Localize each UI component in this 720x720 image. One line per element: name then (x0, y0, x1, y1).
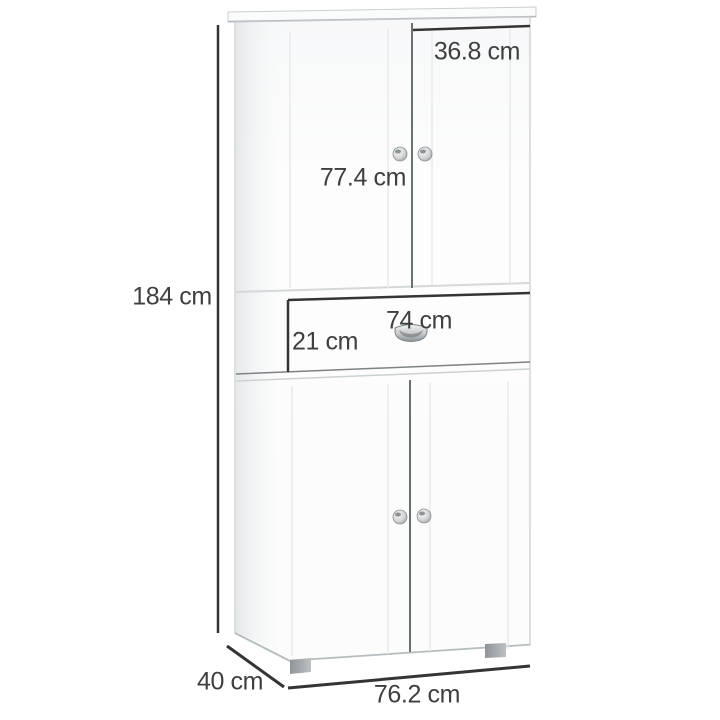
dim-label-depth: 40 cm (197, 670, 263, 695)
cabinet-foot (485, 643, 506, 658)
door-knob-icon (418, 147, 432, 161)
door-knob-icon (417, 509, 431, 523)
dim-label-width: 76.2 cm (374, 683, 460, 708)
dim-label-drawer-height: 21 cm (292, 330, 358, 355)
dim-label-drawer-width: 74 cm (386, 309, 452, 334)
dim-label-right-door-width: 36.8 cm (434, 40, 520, 65)
cabinet-illustration (0, 0, 720, 720)
cabinet-foot (290, 658, 311, 674)
dim-label-height: 184 cm (132, 285, 212, 310)
door-knob-icon (393, 147, 407, 161)
door-knob-icon (393, 510, 407, 524)
dim-label-upper-door-height: 77.4 cm (320, 166, 406, 191)
dimension-diagram: 184 cm 36.8 cm 77.4 cm 74 cm 21 cm 40 cm… (0, 0, 720, 720)
